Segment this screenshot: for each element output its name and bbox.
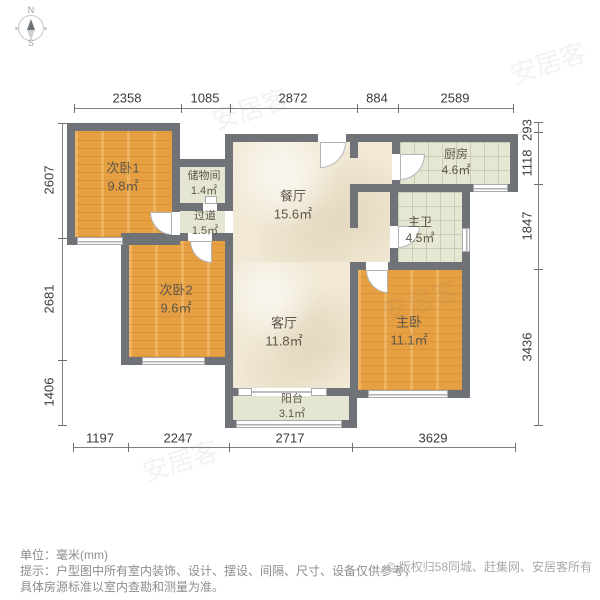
room-label-hallway: 过道1.5㎡ bbox=[192, 209, 218, 239]
wall bbox=[121, 357, 142, 365]
compass-needle-north bbox=[27, 19, 35, 30]
dimension-label: 293 bbox=[520, 119, 535, 141]
room-label-master: 主卧11.1㎡ bbox=[390, 313, 427, 348]
dimension-label: 1197 bbox=[86, 431, 114, 446]
room-name-balcony: 阳台 bbox=[279, 392, 305, 407]
wall bbox=[327, 388, 350, 396]
wall bbox=[172, 159, 233, 167]
wall bbox=[350, 192, 358, 228]
disclaimer-line-2: 具体房源标准以室内查勘和测量为准。 bbox=[20, 578, 224, 595]
wall bbox=[172, 123, 180, 212]
room-name-master: 主卧 bbox=[390, 313, 427, 331]
disclaimer-line-1: 提示：户型图中所有室内装饰、设计、摆设、间隔、尺寸、设备仅供参考， bbox=[20, 562, 416, 579]
sliding-door-panel bbox=[238, 388, 252, 396]
compass-east-dot bbox=[44, 27, 47, 30]
floorplan-drawing: 2358108528728842589119722472717362926072… bbox=[0, 0, 600, 600]
wall bbox=[225, 420, 236, 428]
window bbox=[473, 184, 508, 192]
dimension-label: 3436 bbox=[520, 333, 535, 362]
door-opening bbox=[392, 154, 400, 180]
wall bbox=[350, 142, 358, 158]
dimension-line bbox=[73, 447, 515, 448]
window bbox=[462, 228, 470, 252]
dimension-label: 2247 bbox=[164, 431, 193, 446]
dimension-tick bbox=[58, 238, 67, 239]
room-area-bath: 4.5㎡ bbox=[406, 230, 435, 246]
dimension-line bbox=[74, 108, 513, 109]
room-name-bedroom1: 次卧1 bbox=[106, 159, 139, 177]
dimension-tick bbox=[515, 443, 516, 452]
dimension-tick bbox=[128, 443, 129, 452]
wall bbox=[462, 262, 470, 398]
dimension-tick bbox=[74, 104, 75, 113]
room-area-hallway: 1.5㎡ bbox=[192, 224, 218, 239]
dimension-tick bbox=[534, 122, 543, 123]
room-area-living: 11.8㎡ bbox=[265, 332, 302, 350]
dimension-line bbox=[62, 123, 63, 425]
room-label-bedroom2: 次卧29.6㎡ bbox=[159, 281, 192, 316]
compass-west-dot bbox=[15, 27, 18, 30]
door-opening bbox=[390, 226, 398, 248]
room-area-bedroom1: 9.8㎡ bbox=[106, 177, 139, 195]
wall bbox=[67, 123, 180, 131]
floor-dining bbox=[233, 142, 392, 262]
copyright-notice: © 版权归58同城、赶集网、安居客所有 bbox=[386, 558, 592, 575]
dimension-tick bbox=[58, 360, 67, 361]
dimension-label: 2872 bbox=[279, 91, 308, 106]
window bbox=[77, 237, 123, 245]
room-area-storage: 1.4㎡ bbox=[188, 184, 221, 199]
wall bbox=[350, 184, 400, 192]
room-name-bath: 主卫 bbox=[406, 214, 435, 230]
room-label-dining: 餐厅15.6㎡ bbox=[274, 187, 312, 222]
dimension-tick bbox=[398, 104, 399, 113]
dimension-label: 1118 bbox=[520, 150, 535, 177]
sliding-door-panel bbox=[311, 388, 327, 396]
room-area-balcony: 3.1㎡ bbox=[279, 407, 305, 422]
door-opening bbox=[172, 212, 180, 235]
unit-note: 单位：毫米(mm) bbox=[20, 546, 108, 563]
room-area-kitchen: 4.6㎡ bbox=[442, 162, 471, 178]
dimension-tick bbox=[534, 269, 543, 270]
room-name-hallway: 过道 bbox=[192, 209, 218, 224]
room-name-dining: 餐厅 bbox=[274, 187, 312, 205]
dimension-label: 2607 bbox=[42, 166, 57, 195]
dimension-tick bbox=[181, 104, 182, 113]
wall bbox=[67, 123, 75, 245]
door-opening bbox=[366, 262, 388, 270]
wall bbox=[225, 134, 318, 142]
dimension-line bbox=[538, 122, 539, 425]
room-label-bath: 主卫4.5㎡ bbox=[406, 214, 435, 246]
floorplan-image: N S 235810852872884258911972247271736292… bbox=[0, 0, 600, 600]
compass-north-label: N bbox=[28, 5, 35, 15]
wall bbox=[388, 262, 470, 270]
room-name-living: 客厅 bbox=[265, 314, 302, 332]
dimension-label: 2589 bbox=[441, 91, 470, 106]
dimension-label: 2358 bbox=[113, 91, 142, 106]
dimension-tick bbox=[357, 104, 358, 113]
dimension-label: 2717 bbox=[276, 431, 305, 446]
wall bbox=[392, 142, 400, 154]
dimension-tick bbox=[58, 123, 67, 124]
dimension-label: 1085 bbox=[191, 91, 220, 106]
dimension-tick bbox=[534, 425, 543, 426]
dimension-tick bbox=[230, 104, 231, 113]
room-label-bedroom1: 次卧19.8㎡ bbox=[106, 159, 139, 194]
room-area-bedroom2: 9.6㎡ bbox=[159, 299, 192, 317]
wall bbox=[342, 420, 357, 428]
wall bbox=[225, 134, 233, 211]
dimension-label: 3629 bbox=[419, 431, 448, 446]
dimension-tick bbox=[513, 104, 514, 113]
room-label-balcony: 阳台3.1㎡ bbox=[279, 392, 305, 422]
dimension-tick bbox=[352, 443, 353, 452]
wall bbox=[390, 192, 398, 226]
wall bbox=[67, 237, 77, 245]
dimension-label: 884 bbox=[366, 91, 388, 106]
dimension-label: 1406 bbox=[42, 378, 57, 407]
dimension-label: 1847 bbox=[520, 212, 535, 241]
wall bbox=[508, 184, 518, 192]
room-area-master: 11.1㎡ bbox=[390, 331, 427, 349]
dimension-tick bbox=[73, 443, 74, 452]
compass-south-label: S bbox=[28, 38, 34, 48]
dimension-tick bbox=[534, 132, 543, 133]
room-area-dining: 15.6㎡ bbox=[274, 205, 312, 223]
wall bbox=[350, 262, 358, 398]
wall bbox=[225, 233, 233, 396]
dimension-tick bbox=[58, 425, 67, 426]
dimension-label: 2681 bbox=[42, 285, 57, 314]
wall bbox=[462, 184, 470, 228]
window bbox=[368, 390, 448, 398]
dimension-tick bbox=[229, 443, 230, 452]
dimension-tick bbox=[534, 184, 543, 185]
wall bbox=[121, 233, 129, 365]
compass: N S bbox=[0, 0, 60, 60]
wall bbox=[392, 180, 400, 184]
door-opening bbox=[318, 134, 346, 142]
room-name-storage: 储物间 bbox=[188, 169, 221, 184]
wall bbox=[448, 390, 470, 398]
room-label-kitchen: 厨房4.6㎡ bbox=[442, 146, 471, 178]
window bbox=[142, 357, 205, 365]
room-name-kitchen: 厨房 bbox=[442, 146, 471, 162]
room-label-living: 客厅11.8㎡ bbox=[265, 314, 302, 349]
room-label-storage: 储物间1.4㎡ bbox=[188, 169, 221, 199]
room-name-bedroom2: 次卧2 bbox=[159, 281, 192, 299]
wall bbox=[346, 134, 518, 142]
